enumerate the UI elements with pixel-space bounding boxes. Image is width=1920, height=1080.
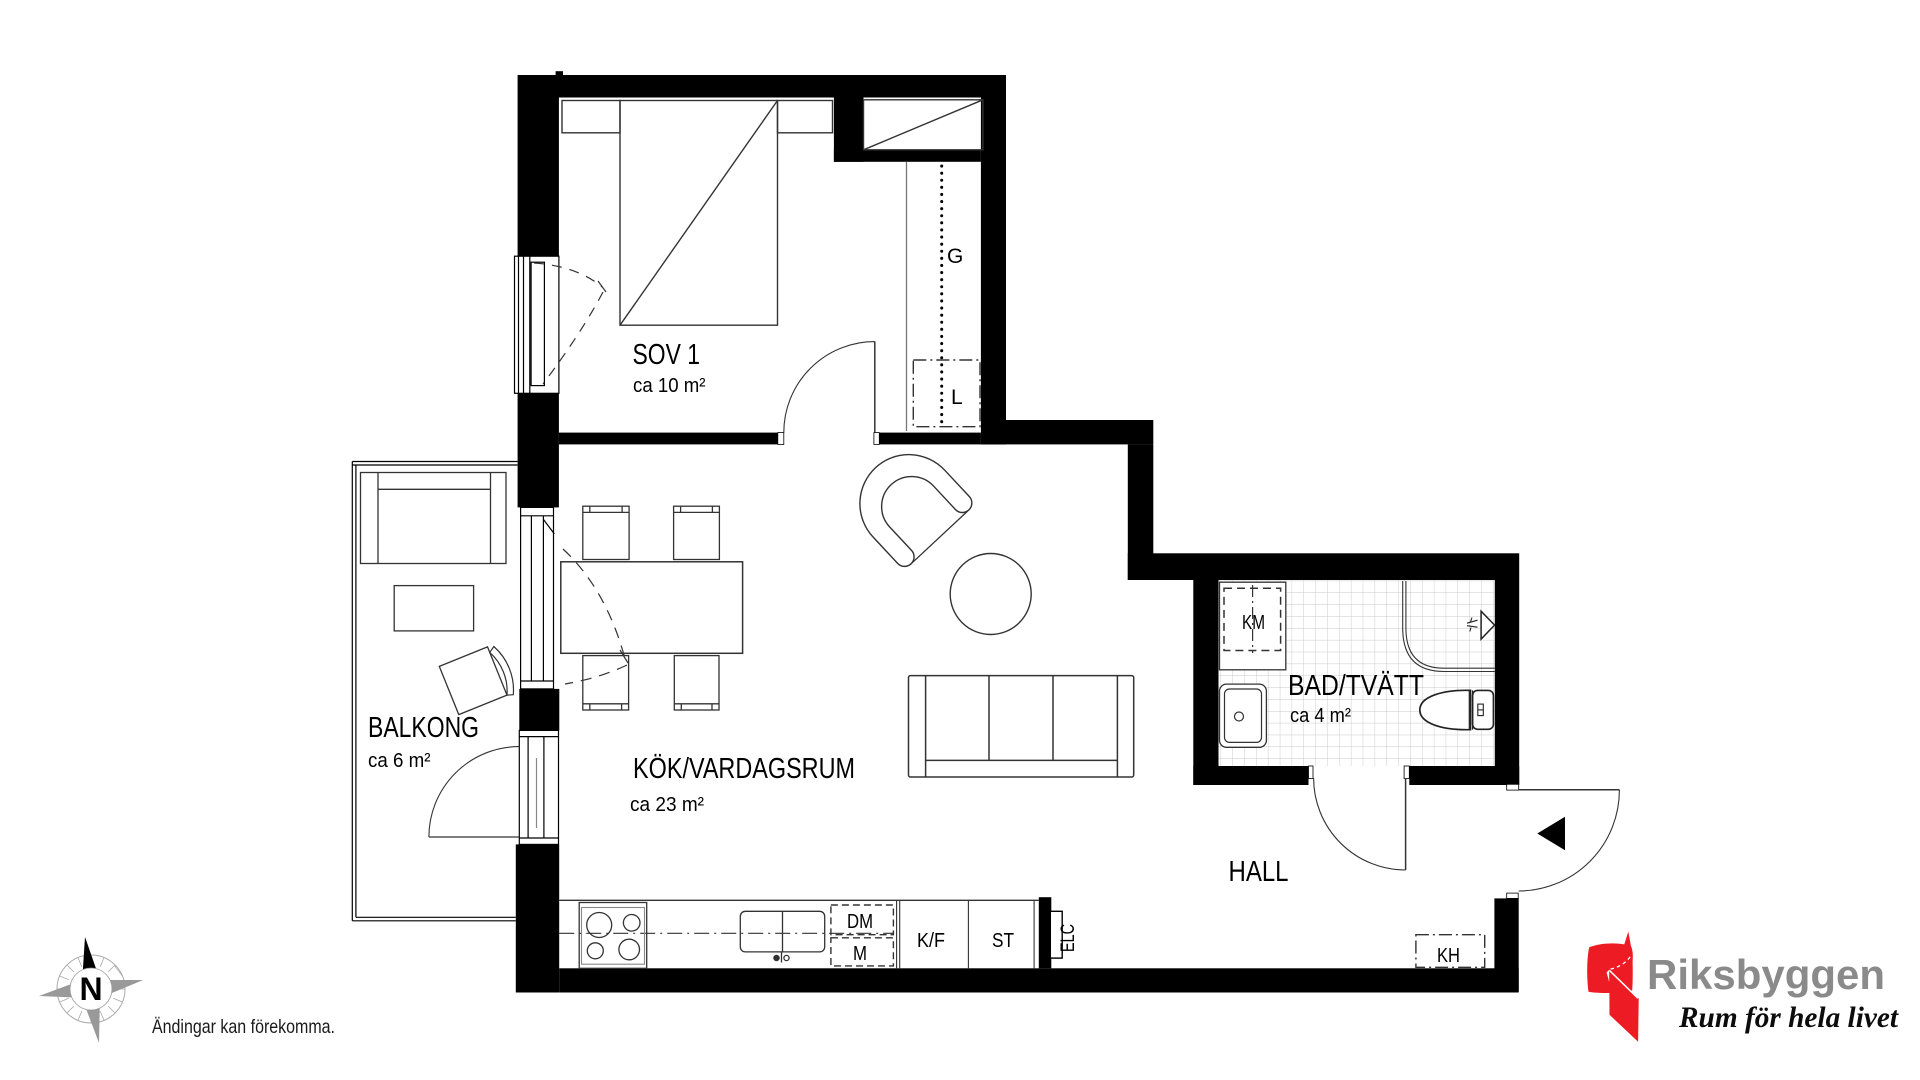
svg-text:ST: ST xyxy=(992,930,1014,952)
svg-text:Riksbyggen: Riksbyggen xyxy=(1647,951,1885,998)
svg-text:Rum för hela livet: Rum för hela livet xyxy=(1678,1001,1900,1034)
svg-text:KÖK/VARDAGSRUM: KÖK/VARDAGSRUM xyxy=(633,753,855,785)
svg-text:SOV 1: SOV 1 xyxy=(633,339,701,371)
svg-text:KM: KM xyxy=(1242,612,1265,634)
svg-text:N: N xyxy=(79,971,102,1007)
svg-text:ca 23 m²: ca 23 m² xyxy=(630,794,704,816)
svg-text:DM: DM xyxy=(847,911,873,933)
svg-text:ca 6 m²: ca 6 m² xyxy=(368,750,431,772)
svg-text:BAD/TVÄTT: BAD/TVÄTT xyxy=(1288,670,1424,702)
svg-text:ELC: ELC xyxy=(1058,924,1079,952)
svg-text:ca 4 m²: ca 4 m² xyxy=(1290,705,1351,727)
svg-text:G: G xyxy=(947,245,963,268)
svg-text:ca 10 m²: ca 10 m² xyxy=(633,375,706,397)
svg-text:KH: KH xyxy=(1437,945,1460,967)
svg-text:M: M xyxy=(853,943,867,965)
svg-text:BALKONG: BALKONG xyxy=(368,712,479,744)
svg-text:L: L xyxy=(951,386,963,409)
svg-text:Ändingar kan förekomma.: Ändingar kan förekomma. xyxy=(152,1016,335,1038)
svg-text:K/F: K/F xyxy=(917,930,945,952)
svg-text:HALL: HALL xyxy=(1229,856,1289,888)
